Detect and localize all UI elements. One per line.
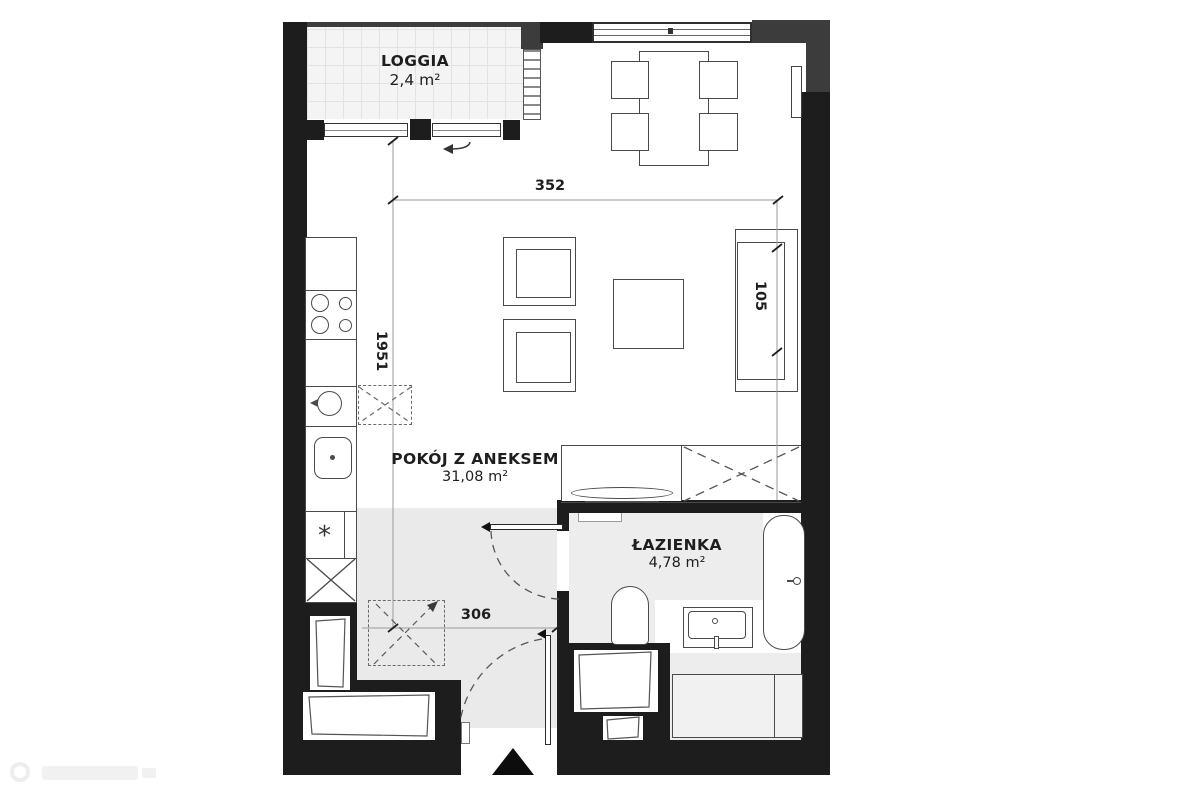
- tv-icon: [571, 487, 673, 499]
- tv-sideboard: [561, 446, 682, 501]
- loggia-name: LOGGIA: [355, 52, 475, 70]
- entrance-marker-icon: [492, 748, 534, 775]
- kettle-spout: [310, 399, 318, 407]
- sink-drain: [330, 455, 335, 460]
- bottom-right-wall: [670, 740, 830, 775]
- shaft-niche: [310, 616, 350, 690]
- bathroom-door-leaf: [490, 524, 563, 530]
- window-mullion: [668, 28, 673, 34]
- entrance-door-leaf: [545, 635, 551, 745]
- bathroom-area: 4,78 m²: [612, 555, 742, 571]
- living-room-name: POKÓJ Z ANEKSEM: [385, 450, 565, 468]
- balcony-door-post: [307, 120, 324, 140]
- balcony-door-post: [410, 119, 431, 140]
- counter-divider: [306, 558, 356, 559]
- kettle-icon: [317, 391, 342, 416]
- asterisk-symbol: *: [306, 514, 343, 558]
- laundry-cabinet: [672, 674, 803, 738]
- basin-drain: [712, 618, 718, 624]
- counter-divider: [306, 290, 356, 291]
- balcony-door: [307, 119, 523, 140]
- arrowhead: [443, 144, 453, 154]
- bathroom-name: ŁAZIENKA: [612, 536, 742, 554]
- cabinet-divider: [774, 675, 775, 737]
- loggia-area: 2,4 m²: [355, 71, 475, 89]
- coffee-table: [613, 279, 684, 349]
- armchair-seat: [516, 332, 571, 383]
- counter-divider: [306, 386, 356, 387]
- armchair-seat: [516, 249, 571, 298]
- tub-tap: [793, 577, 801, 585]
- shaft-niche: [303, 692, 435, 740]
- watermark-mark: [10, 762, 30, 782]
- dining-chair: [699, 113, 738, 151]
- dim-hall-width-label: 306: [446, 607, 506, 623]
- dim-left-height-label: 1951: [373, 321, 389, 381]
- upper-cabinet-dashed: [358, 385, 412, 425]
- counter-divider: [306, 511, 356, 512]
- armchair: [503, 237, 576, 306]
- armchair: [503, 319, 576, 392]
- door-hinge-mark: [537, 629, 546, 639]
- dining-chair: [611, 61, 649, 99]
- tv-wardrobe-band: [561, 445, 801, 503]
- living-room-window: [592, 22, 752, 43]
- living-room-area: 31,08 m²: [385, 469, 565, 485]
- balcony-door-panel: [324, 123, 408, 137]
- hall-wardrobe-dashed: [368, 600, 445, 666]
- basin-bowl: [688, 611, 746, 639]
- stove-burner: [311, 294, 329, 312]
- stove-burner: [339, 319, 352, 332]
- dining-chair: [611, 113, 649, 151]
- dining-chair: [699, 61, 738, 99]
- watermark-text-blur: [42, 766, 138, 780]
- dim-right-segment-label: 105: [752, 266, 768, 326]
- glazing-line: [433, 130, 500, 131]
- right-wall: [801, 92, 830, 775]
- glazing-line: [594, 35, 750, 36]
- shaft-niche: [603, 716, 643, 740]
- loggia-side-window: [523, 49, 541, 120]
- glazing-line: [325, 130, 407, 131]
- counter-divider: [344, 511, 345, 558]
- counter-divider: [306, 426, 356, 427]
- balcony-door-panel: [432, 123, 501, 137]
- tv-stand-line: [585, 501, 659, 503]
- counter-divider: [306, 339, 356, 340]
- watermark-logo: [8, 756, 168, 794]
- wall-recess: [791, 66, 802, 118]
- floor-plan: *: [0, 0, 1200, 800]
- balcony-door-arrow: [450, 142, 470, 149]
- door-jamb: [461, 722, 470, 744]
- loggia-outer-wall: [283, 22, 541, 27]
- window-lintel: [540, 22, 592, 43]
- balcony-door-post: [503, 120, 520, 140]
- tub-tap-stem: [787, 580, 794, 582]
- hallway-floor: [461, 680, 557, 728]
- basin-tap: [714, 636, 719, 649]
- bath-wall-niche: [578, 513, 622, 522]
- stove-burner: [339, 297, 352, 310]
- door-swing-arrowhead: [481, 522, 490, 532]
- dim-top-width-label: 352: [520, 178, 580, 194]
- stove-burner: [311, 316, 329, 334]
- shaft-niche: [574, 650, 658, 712]
- watermark-text-blur: [142, 768, 156, 778]
- toilet: [611, 586, 649, 645]
- bathroom-left-wall: [557, 591, 569, 643]
